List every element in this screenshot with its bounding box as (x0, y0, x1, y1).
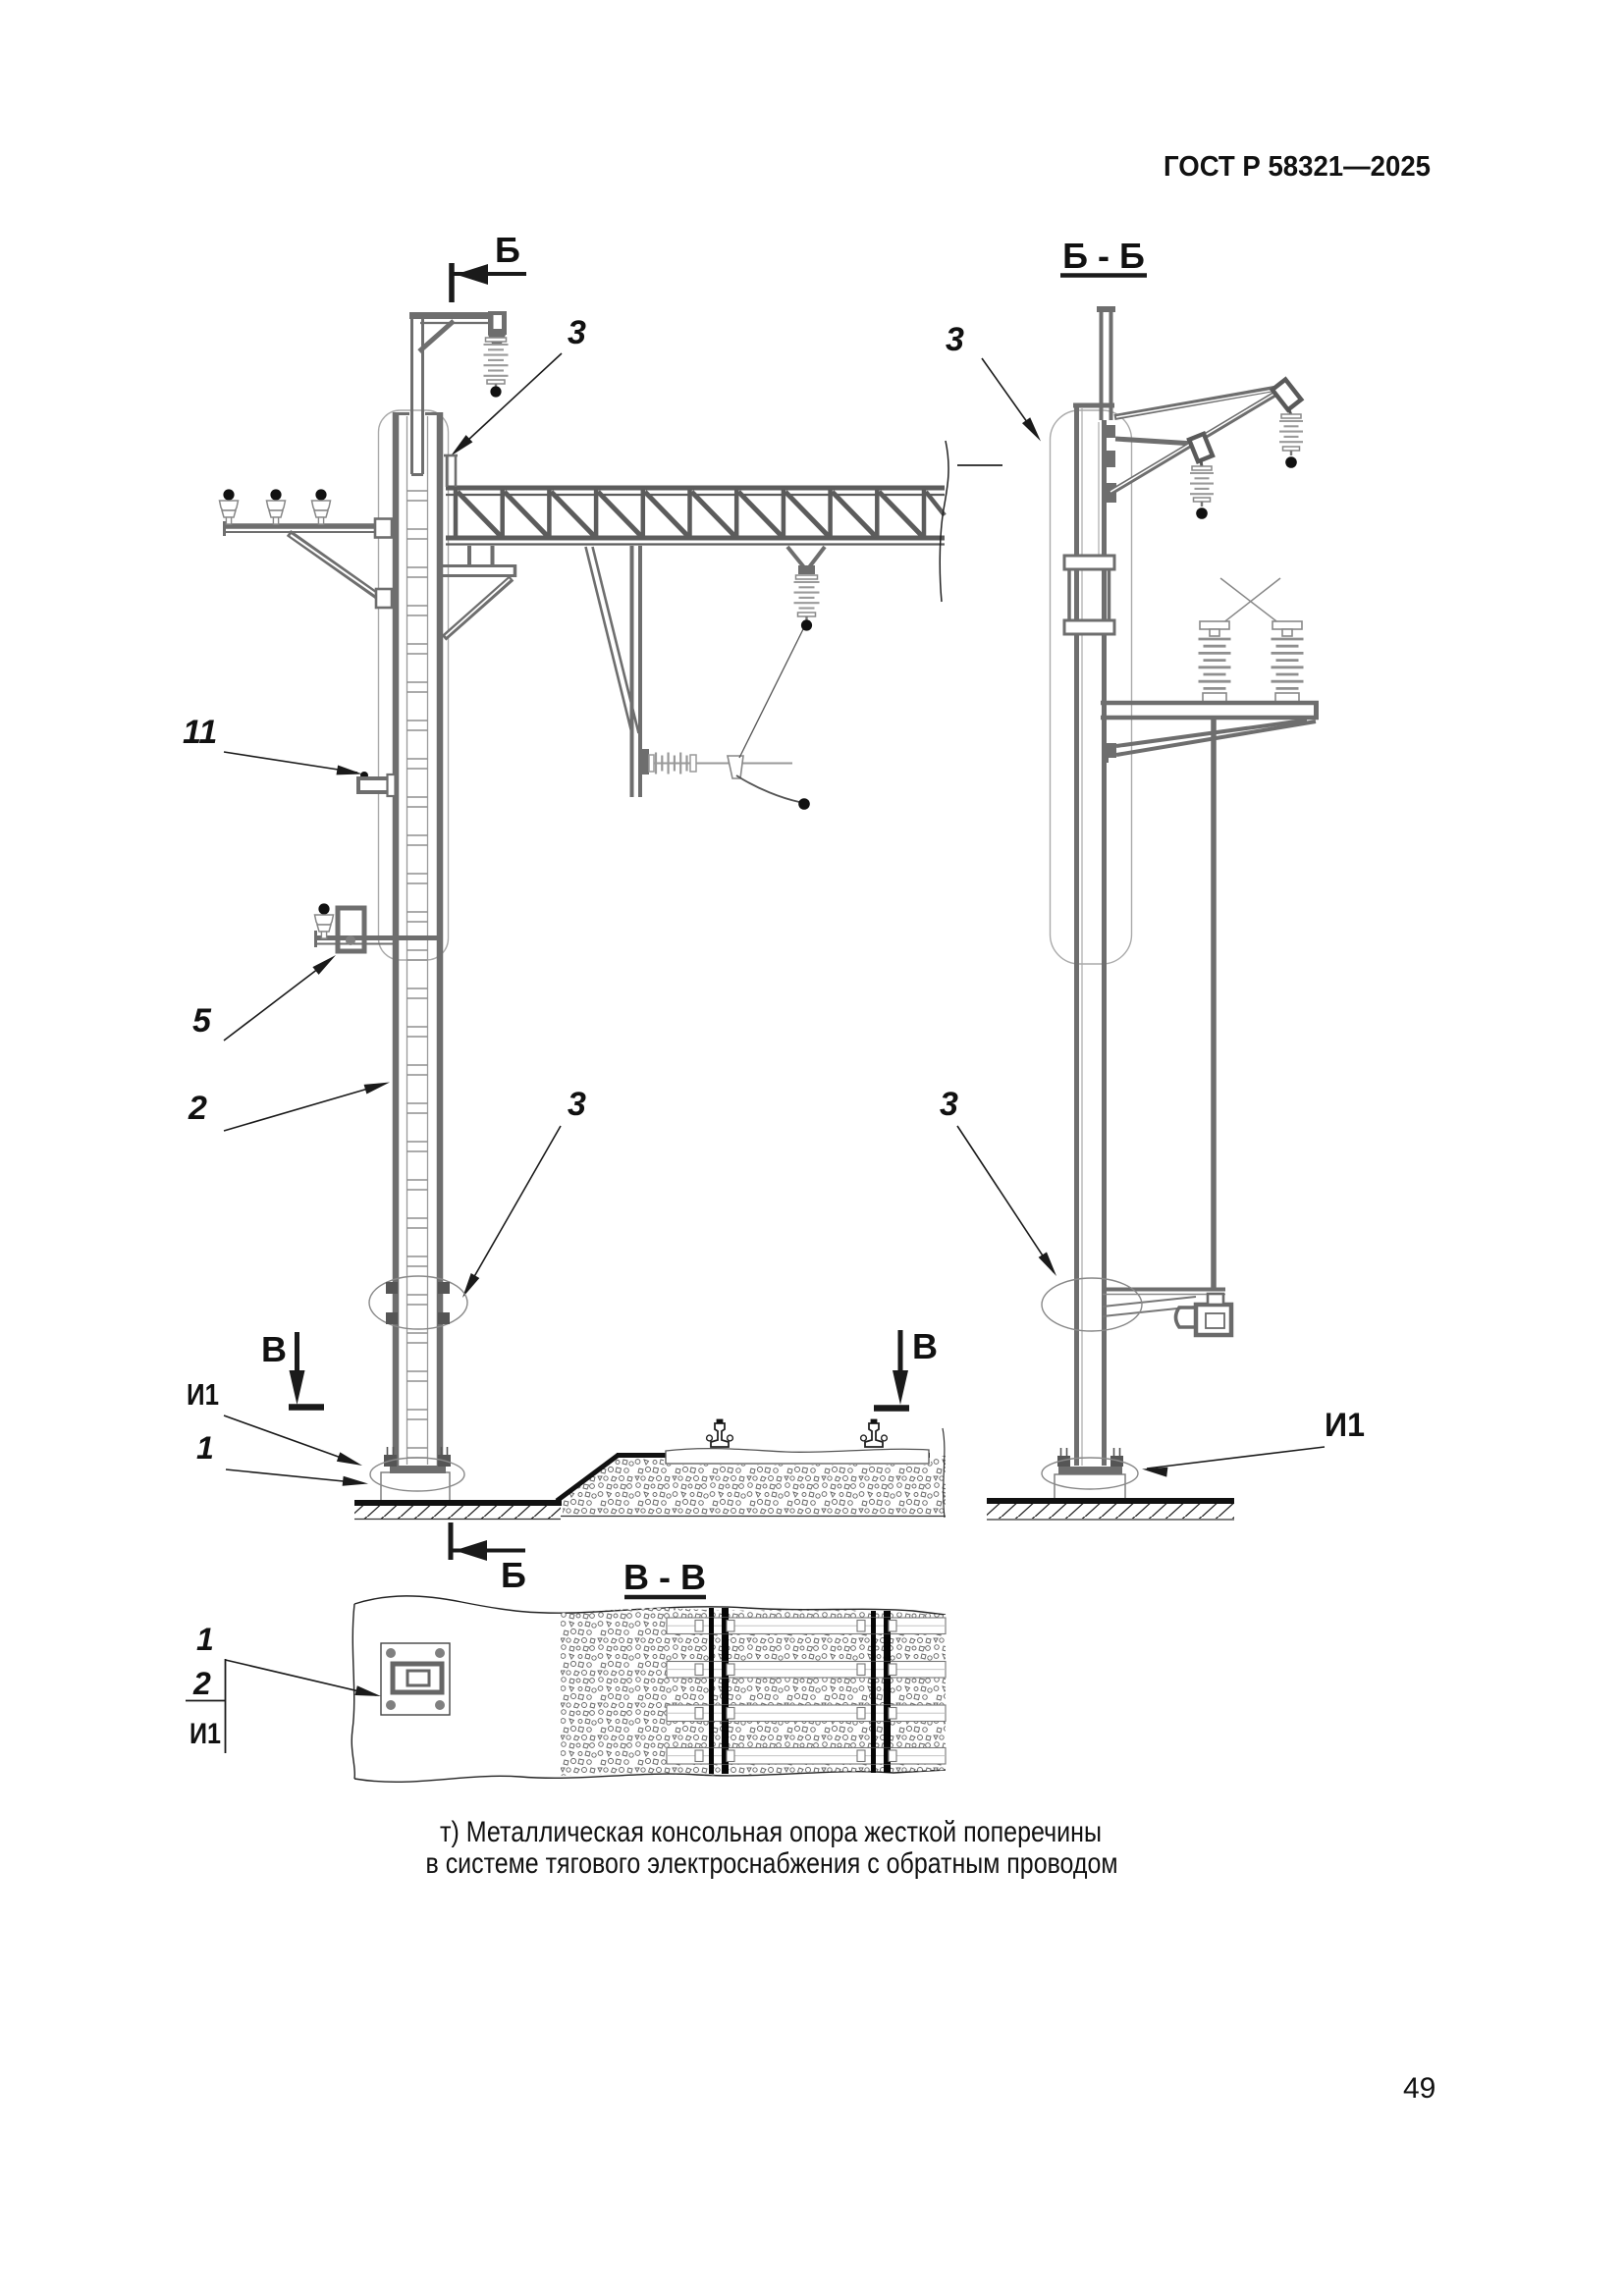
svg-text:3: 3 (568, 314, 586, 351)
svg-text:3: 3 (946, 321, 964, 358)
svg-text:2: 2 (192, 1666, 211, 1701)
svg-text:11: 11 (183, 714, 217, 751)
svg-text:2: 2 (188, 1090, 207, 1127)
svg-text:ГОСТ Р 58321—2025: ГОСТ Р 58321—2025 (1164, 151, 1431, 183)
svg-text:3: 3 (940, 1086, 958, 1123)
svg-text:И1: И1 (189, 1718, 221, 1750)
svg-text:В - В: В - В (623, 1557, 706, 1597)
svg-text:3: 3 (568, 1086, 586, 1123)
svg-text:Б: Б (495, 230, 520, 270)
svg-text:5: 5 (192, 1002, 212, 1040)
svg-text:Б - Б: Б - Б (1062, 236, 1145, 276)
svg-text:в системе тягового электроснаб: в системе тягового электроснабжения с об… (426, 1847, 1118, 1880)
svg-text:1: 1 (196, 1622, 214, 1657)
svg-text:И1: И1 (187, 1377, 219, 1412)
svg-text:В: В (912, 1326, 938, 1366)
svg-text:49: 49 (1403, 2072, 1435, 2105)
svg-text:т) Металлическая консольная оп: т) Металлическая консольная опора жестко… (440, 1816, 1102, 1848)
svg-text:Б: Б (501, 1555, 526, 1595)
svg-text:1: 1 (196, 1430, 214, 1466)
svg-text:В: В (261, 1329, 287, 1369)
svg-text:И1: И1 (1325, 1407, 1365, 1444)
